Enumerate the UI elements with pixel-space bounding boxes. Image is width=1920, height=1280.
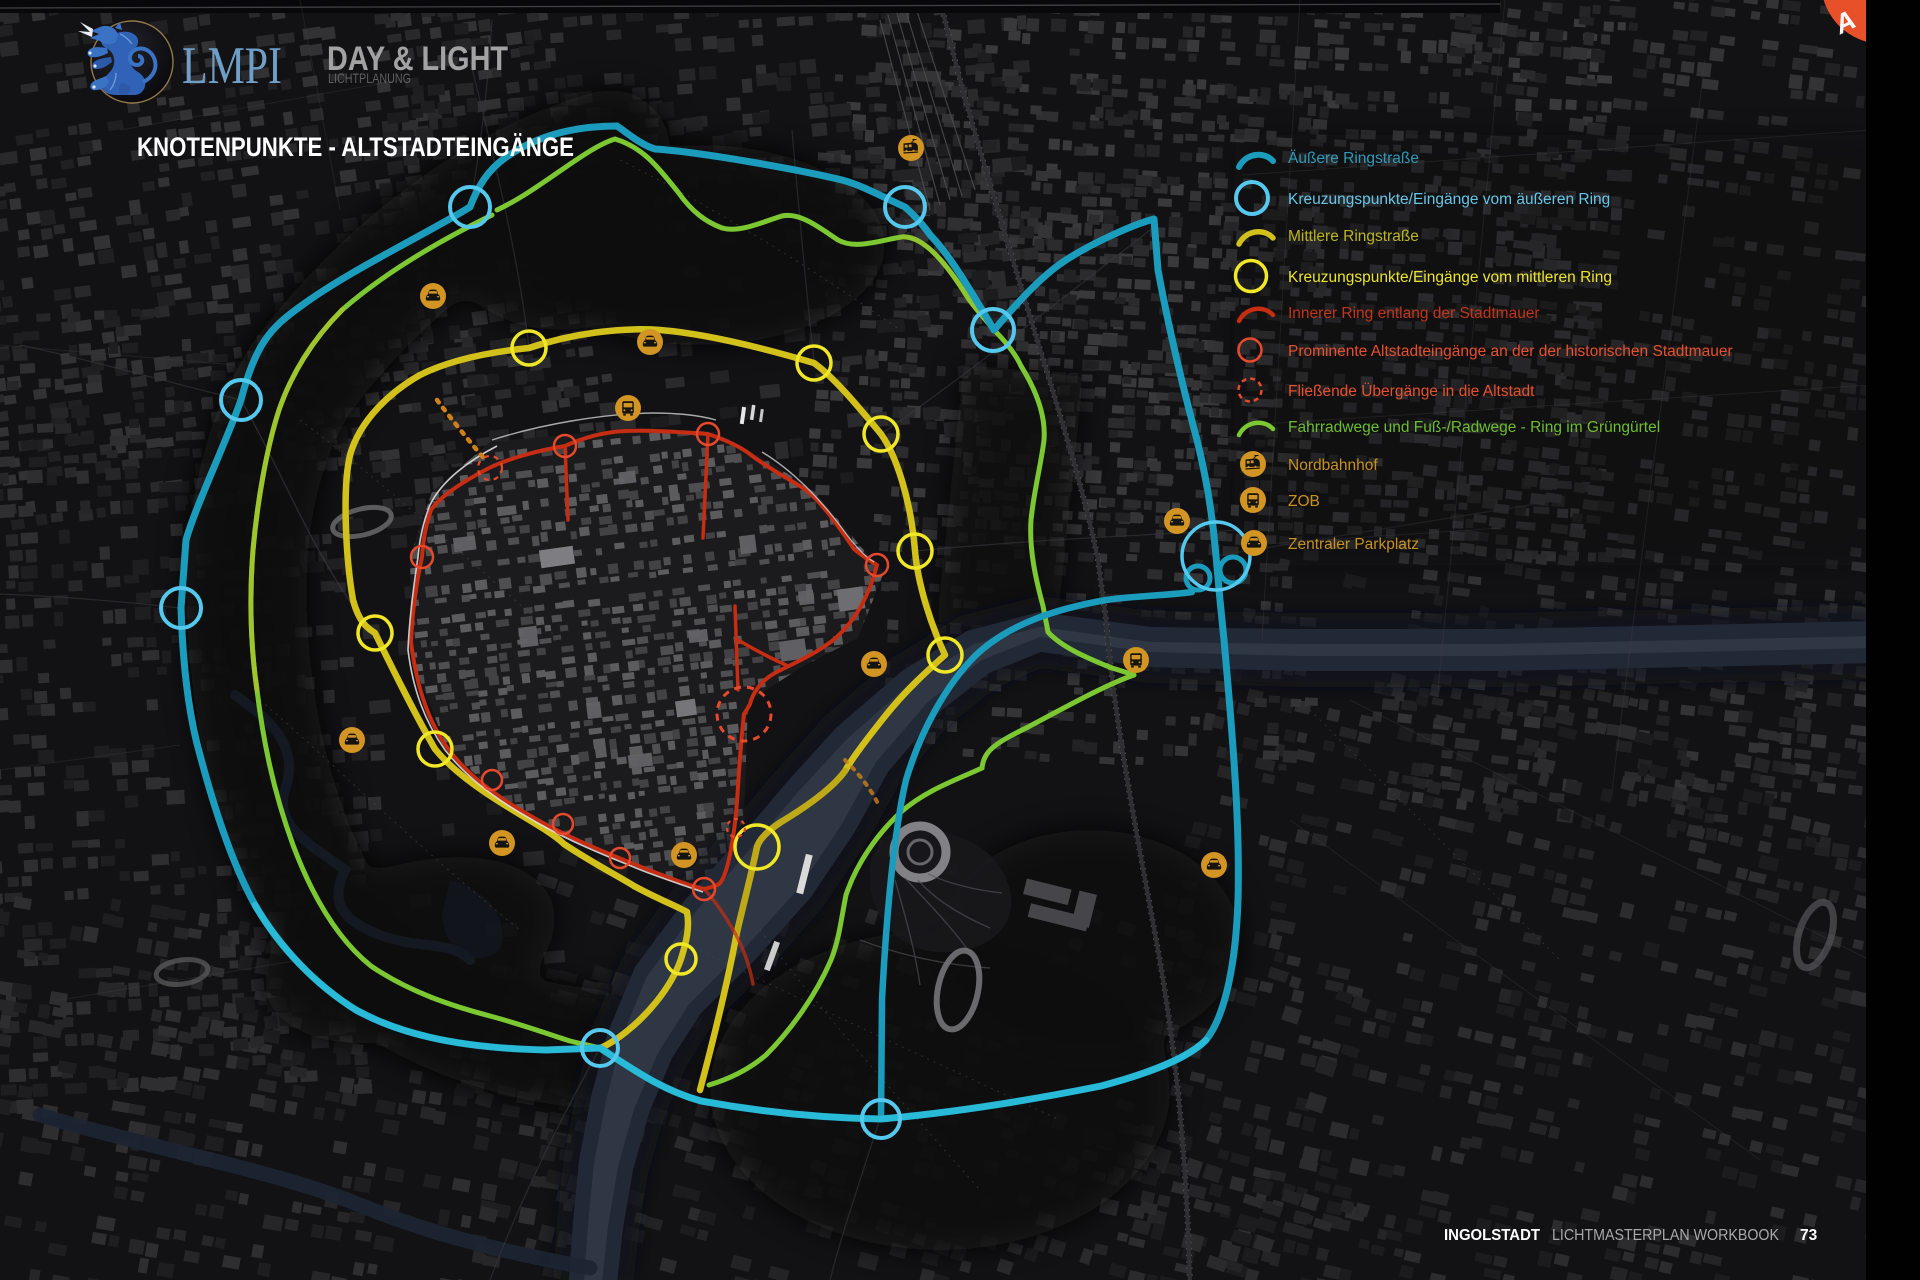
svg-text:Zentraler Parkplatz: Zentraler Parkplatz xyxy=(1288,536,1419,553)
svg-text:Fahrradwege und Fuß-/Radwege -: Fahrradwege und Fuß-/Radwege - Ring im G… xyxy=(1288,419,1660,436)
svg-text:LMPI: LMPI xyxy=(182,37,282,95)
svg-text:Innerer Ring entlang der Stadt: Innerer Ring entlang der Stadtmauer xyxy=(1288,305,1540,322)
svg-text:INGOLSTADT: INGOLSTADT xyxy=(1444,1227,1541,1244)
svg-text:Fließende Übergänge in die Alt: Fließende Übergänge in die Altstadt xyxy=(1288,382,1535,400)
svg-text:KNOTENPUNKTE - ALTSTADTEINGÄNG: KNOTENPUNKTE - ALTSTADTEINGÄNGE xyxy=(137,132,574,162)
svg-text:Kreuzungspunkte/Eingänge vom ä: Kreuzungspunkte/Eingänge vom äußeren Rin… xyxy=(1288,191,1610,208)
svg-text:ZOB: ZOB xyxy=(1288,493,1320,510)
svg-text:Kreuzungspunkte/Eingänge vom m: Kreuzungspunkte/Eingänge vom mittleren R… xyxy=(1288,269,1612,286)
svg-text:Äußere Ringstraße: Äußere Ringstraße xyxy=(1288,150,1419,167)
svg-text:73: 73 xyxy=(1800,1227,1818,1244)
svg-text:Nordbahnhof: Nordbahnhof xyxy=(1288,457,1378,474)
svg-text:Mittlere Ringstraße: Mittlere Ringstraße xyxy=(1288,228,1419,245)
svg-text:LICHTMASTERPLAN WORKBOOK: LICHTMASTERPLAN WORKBOOK xyxy=(1552,1227,1780,1244)
svg-text:LICHTPLANUNG: LICHTPLANUNG xyxy=(328,70,411,86)
svg-text:Prominente Altstadteingänge an: Prominente Altstadteingänge an der der h… xyxy=(1288,343,1733,360)
